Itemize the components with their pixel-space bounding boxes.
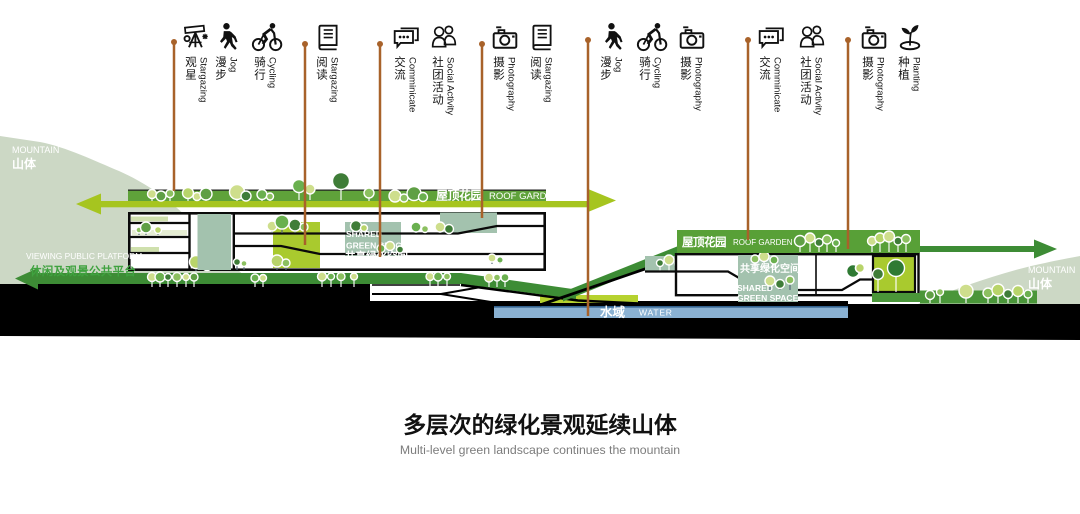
- svg-text:Cycling: Cycling: [267, 57, 278, 88]
- svg-text:Photography: Photography: [875, 57, 886, 111]
- svg-text:Comminicate: Comminicate: [772, 57, 783, 112]
- svg-text:Photography: Photography: [506, 57, 517, 111]
- svg-text:水域: 水域: [600, 305, 626, 320]
- svg-text:休闲及观景公共平台: 休闲及观景公共平台: [29, 264, 136, 278]
- svg-text:Jog: Jog: [228, 57, 239, 72]
- svg-text:共享绿化空间: 共享绿化空间: [740, 262, 800, 275]
- svg-text:Comminicate: Comminicate: [407, 57, 418, 112]
- svg-text:阅读: 阅读: [316, 56, 328, 82]
- svg-text:骑行: 骑行: [254, 56, 266, 82]
- svg-text:社团活动: 社团活动: [800, 55, 812, 107]
- svg-text:骑行: 骑行: [639, 56, 651, 82]
- svg-text:VIEWING PUBLIC PLATFORM: VIEWING PUBLIC PLATFORM: [26, 251, 142, 261]
- svg-text:社团活动: 社团活动: [432, 55, 444, 107]
- svg-text:交流: 交流: [759, 55, 771, 82]
- svg-text:多层次的绿化景观延续山体: 多层次的绿化景观延续山体: [403, 412, 677, 438]
- svg-text:MOUNTAIN: MOUNTAIN: [12, 145, 59, 155]
- svg-text:WATER: WATER: [639, 308, 673, 318]
- svg-text:屋顶花园: 屋顶花园: [436, 188, 483, 203]
- svg-text:Stargazing: Stargazing: [543, 57, 554, 102]
- svg-text:Jog: Jog: [613, 57, 624, 72]
- svg-text:山体: 山体: [1028, 276, 1053, 291]
- svg-text:观星: 观星: [185, 56, 197, 82]
- svg-text:Cycling: Cycling: [652, 57, 663, 88]
- svg-text:Multi-level green landscape co: Multi-level green landscape continues th…: [400, 443, 680, 457]
- svg-text:交流: 交流: [394, 55, 406, 82]
- svg-text:漫步: 漫步: [600, 55, 612, 82]
- svg-text:摄影: 摄影: [862, 55, 874, 82]
- svg-text:漫步: 漫步: [215, 55, 227, 82]
- svg-text:山体: 山体: [12, 156, 37, 171]
- svg-text:ROOF GARDEN: ROOF GARDEN: [489, 191, 560, 202]
- svg-text:Social Activity: Social Activity: [445, 57, 456, 115]
- svg-text:Stargazing: Stargazing: [198, 57, 209, 102]
- svg-text:GREEN SPACE: GREEN SPACE: [737, 293, 799, 303]
- svg-text:屋顶花园: 屋顶花园: [682, 235, 726, 249]
- svg-text:阅读: 阅读: [530, 56, 542, 82]
- svg-text:Planting: Planting: [911, 57, 922, 91]
- svg-text:摄影: 摄影: [493, 55, 505, 82]
- svg-text:摄影: 摄影: [680, 55, 692, 82]
- svg-text:Stargazing: Stargazing: [329, 57, 340, 102]
- svg-text:ROOF GARDEN: ROOF GARDEN: [733, 238, 793, 247]
- svg-text:MOUNTAIN: MOUNTAIN: [1028, 265, 1075, 275]
- svg-text:Photography: Photography: [693, 57, 704, 111]
- svg-text:种植: 种植: [898, 55, 910, 82]
- svg-text:Social Activity: Social Activity: [813, 57, 824, 115]
